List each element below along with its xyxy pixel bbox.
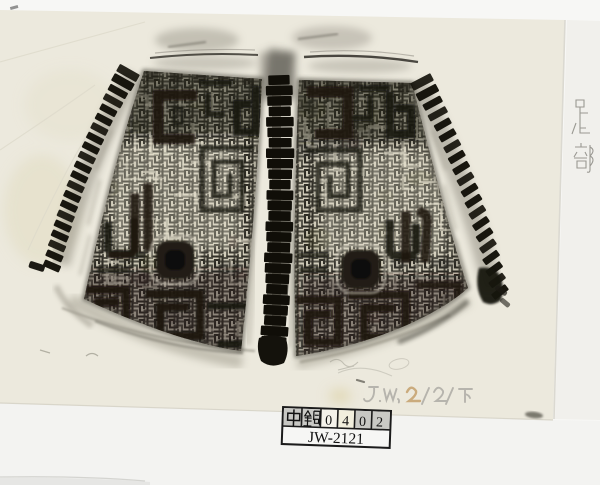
svg-text:4: 4 (342, 414, 350, 429)
svg-text:JW-2121: JW-2121 (308, 429, 365, 448)
svg-text:2: 2 (376, 415, 384, 430)
svg-text:0: 0 (325, 414, 333, 429)
svg-text:0: 0 (359, 415, 367, 430)
